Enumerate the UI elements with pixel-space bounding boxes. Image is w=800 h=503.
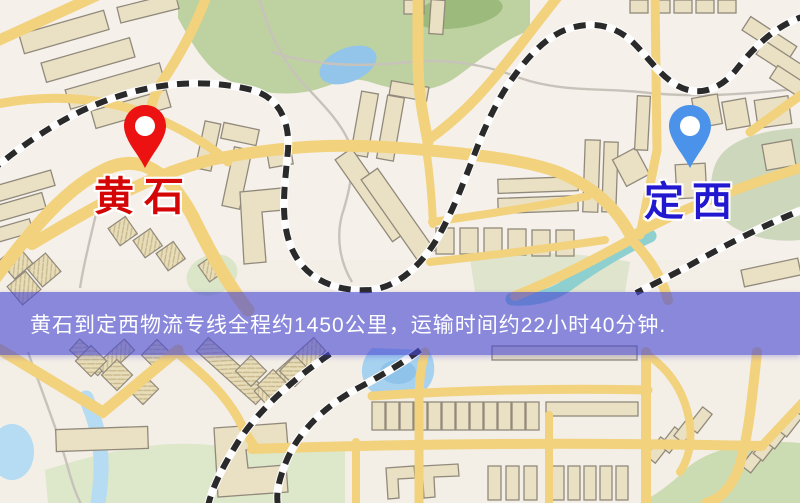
basemap [0,0,800,503]
map-canvas[interactable]: 黄石 定西 黄石到定西物流专线全程约1450公里，运输时间约22小时40分钟. [0,0,800,503]
destination-pin-icon[interactable] [664,101,716,171]
origin-pin-icon[interactable] [119,101,171,171]
route-info-text: 黄石到定西物流专线全程约1450公里，运输时间约22小时40分钟. [0,309,666,339]
route-info-banner: 黄石到定西物流专线全程约1450公里，运输时间约22小时40分钟. [0,292,800,355]
origin-city-label: 黄石 [94,177,194,217]
destination-city-label: 定西 [644,182,740,222]
